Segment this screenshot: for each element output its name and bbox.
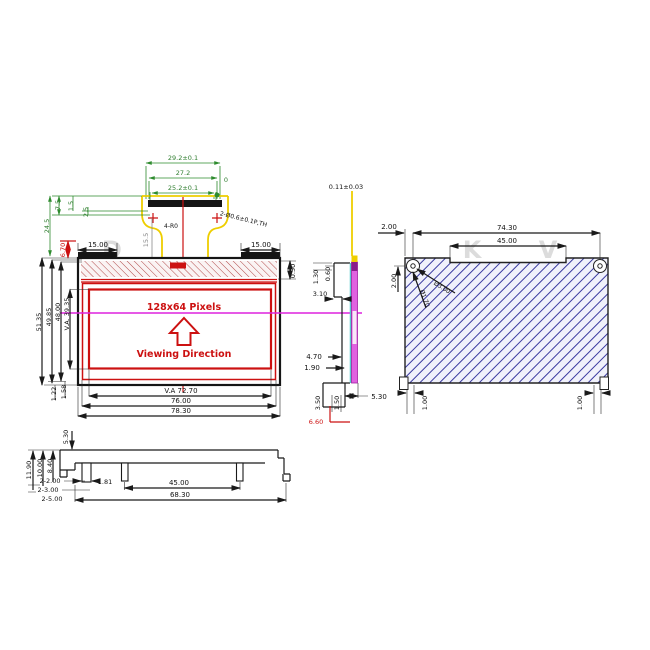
frame-tab-left <box>78 252 117 259</box>
dim-68-30: 68.30 <box>170 491 190 499</box>
dim-45-00-bottom: 45.00 <box>169 479 189 487</box>
dim-48-00: 48.00 <box>54 303 62 322</box>
frame-tab-right <box>241 252 280 259</box>
dim-tab-left: 15.00 <box>88 241 108 249</box>
dim-va-width: V.A 72.70 <box>164 387 197 395</box>
back-tab-right <box>600 377 609 390</box>
drawing-sheet: D K V 29.2±0.1 27.2 25.2±0.1 0 4-R0 2-Ø0… <box>0 0 650 650</box>
dim-4-70: 4.70 <box>306 353 322 361</box>
dim-2-00-horizontal: 2.00 <box>381 223 397 231</box>
dim-1-58: 1.58 <box>60 385 68 399</box>
dim-11-90: 11.90 <box>25 461 33 480</box>
back-tab-left <box>400 377 409 390</box>
side-view: 0.11±0.03 1.30 0.60 3.10 4.70 1.90 5.30 … <box>304 183 387 426</box>
dim-6-60: 6.60 <box>309 418 323 426</box>
dim-5-30-side: 5.30 <box>371 393 387 401</box>
mount-hole-right-inner <box>598 264 602 268</box>
dim-2x2-00: 2-2.00 <box>40 477 61 485</box>
dim-3-50: 3.50 <box>314 396 322 410</box>
dim-1-22: 1.22 <box>50 387 58 401</box>
pin-center-marks <box>148 213 222 223</box>
side-profile-outline <box>323 263 350 407</box>
dim-1-00-left: 1.00 <box>421 396 429 410</box>
dim-15-5: 15.5 <box>142 233 150 247</box>
dim-va-height: V.A. 39.35 <box>63 298 71 331</box>
pixels-label: 128x64 Pixels <box>147 302 222 313</box>
fpc-connector-bar <box>148 200 222 207</box>
film-cap <box>352 256 358 263</box>
glass-panel-gap <box>353 311 357 344</box>
dim-0-50: 0.50 <box>289 264 297 278</box>
mount-hole-left-inner <box>411 264 415 268</box>
dim-2x3-00: 2-3.00 <box>38 486 59 494</box>
dim-2-00-vertical: 2.00 <box>390 274 398 288</box>
dim-8-40: 8.40 <box>46 459 54 473</box>
dim-0-60: 0.60 <box>324 267 332 281</box>
front-view: 128x64 Pixels Viewing Direction 15.00 15… <box>35 241 362 416</box>
connector-footprint <box>170 263 186 269</box>
dim-51-35: 51.35 <box>35 313 43 332</box>
green-marker-dot <box>215 193 220 198</box>
dim-7-5: 7.5 <box>54 200 62 210</box>
bottom-pin-right <box>237 463 244 481</box>
dim-1-5: 1.5 <box>67 201 75 211</box>
dim-1-90: 1.90 <box>304 364 320 372</box>
datum-zero-label: 0 <box>224 176 228 184</box>
dim-49-85: 49.85 <box>45 308 53 327</box>
bottom-boss-left <box>82 463 91 482</box>
dim-1-30: 1.30 <box>312 270 320 284</box>
watermark-letter: K <box>463 236 483 264</box>
bottom-view: 5.30 11.90 10.00 8.40 2-2.00 2-3.00 2-5.… <box>25 430 290 503</box>
dim-5-30-bottom: 5.30 <box>62 430 70 444</box>
dim-1-50: 1.50 <box>333 396 341 410</box>
dim-connector-width-mid: 27.2 <box>176 169 190 177</box>
dim-connector-width-outer: 29.2±0.1 <box>168 154 198 162</box>
dim-10-00: 10.00 <box>36 459 44 478</box>
dim-connector-width-inner: 25.2±0.1 <box>168 184 198 192</box>
dim-2-5: 2.5 <box>82 207 90 217</box>
back-panel <box>405 258 608 383</box>
viewing-direction-label: Viewing Direction <box>137 349 232 360</box>
dim-film-thickness: 0.11±0.03 <box>329 183 363 191</box>
back-view: 74.30 45.00 2.00 2.00 Ø3.00 Ø1.70 1.00 1… <box>378 223 609 414</box>
dim-1-00-right: 1.00 <box>576 396 584 410</box>
dim-78-30: 78.30 <box>171 407 191 415</box>
dim-24-5: 24.5 <box>43 219 51 233</box>
dim-76-00: 76.00 <box>171 397 191 405</box>
note-pin-holes: 2-Ø0.6±0.1P,TH <box>219 210 268 229</box>
watermark-letter: V <box>539 236 558 264</box>
dim-3-10: 3.10 <box>313 290 327 298</box>
dim-6-70: 6.70 <box>59 243 67 257</box>
dim-1-81: 1.81 <box>98 478 112 486</box>
glass-panel-top <box>352 262 358 271</box>
dim-2x5-00: 2-5.00 <box>42 495 63 503</box>
dim-74-30: 74.30 <box>497 224 517 232</box>
bottom-profile-outline <box>60 450 290 481</box>
bottom-pin-left <box>122 463 129 481</box>
dimension-drawing: D K V 29.2±0.1 27.2 25.2±0.1 0 4-R0 2-Ø0… <box>0 0 650 650</box>
note-corner-radius: 4-R0 <box>164 223 178 230</box>
dim-tab-right: 15.00 <box>251 241 271 249</box>
dim-45-00-back: 45.00 <box>497 237 517 245</box>
